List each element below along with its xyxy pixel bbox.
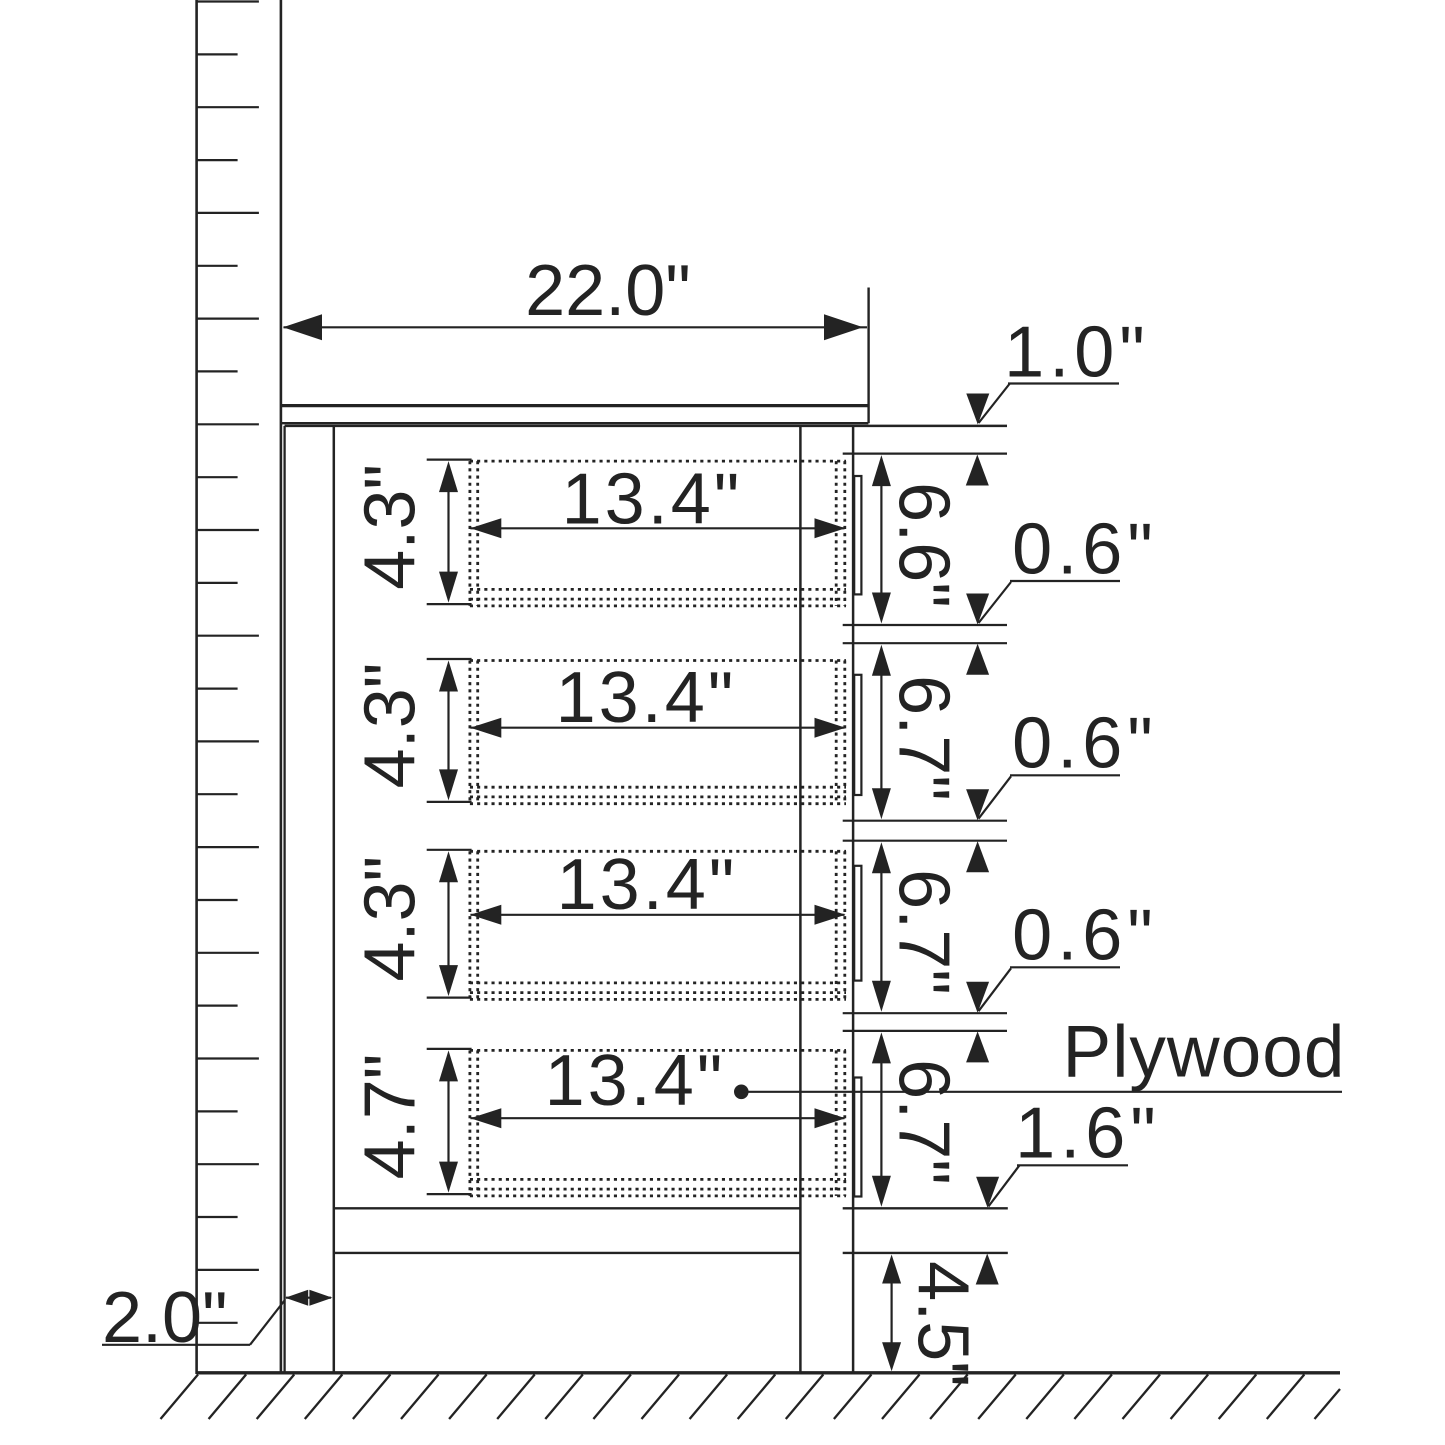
svg-text:1.6": 1.6" — [1015, 1094, 1161, 1174]
svg-text:2.0": 2.0" — [102, 1278, 228, 1358]
svg-text:13.4": 13.4" — [556, 658, 737, 738]
svg-text:4.7": 4.7" — [350, 1054, 430, 1180]
svg-text:0.6": 0.6" — [1012, 896, 1158, 976]
svg-text:6.7": 6.7" — [884, 675, 964, 801]
svg-text:13.4": 13.4" — [545, 1041, 726, 1121]
svg-text:6.7": 6.7" — [884, 869, 964, 995]
svg-text:13.4": 13.4" — [562, 459, 743, 539]
svg-text:6.6": 6.6" — [884, 482, 964, 608]
svg-text:Plywood: Plywood — [1063, 1012, 1346, 1093]
svg-text:4.3": 4.3" — [350, 856, 430, 982]
svg-text:4.3": 4.3" — [350, 663, 430, 789]
svg-text:13.4": 13.4" — [557, 845, 738, 925]
svg-text:22.0": 22.0" — [525, 251, 691, 331]
svg-text:4.5": 4.5" — [903, 1261, 983, 1387]
svg-text:4.3": 4.3" — [350, 464, 430, 590]
svg-text:6.7": 6.7" — [884, 1059, 964, 1185]
svg-text:0.6": 0.6" — [1012, 704, 1158, 784]
svg-text:1.0": 1.0" — [1004, 313, 1150, 393]
svg-text:0.6": 0.6" — [1012, 509, 1158, 589]
